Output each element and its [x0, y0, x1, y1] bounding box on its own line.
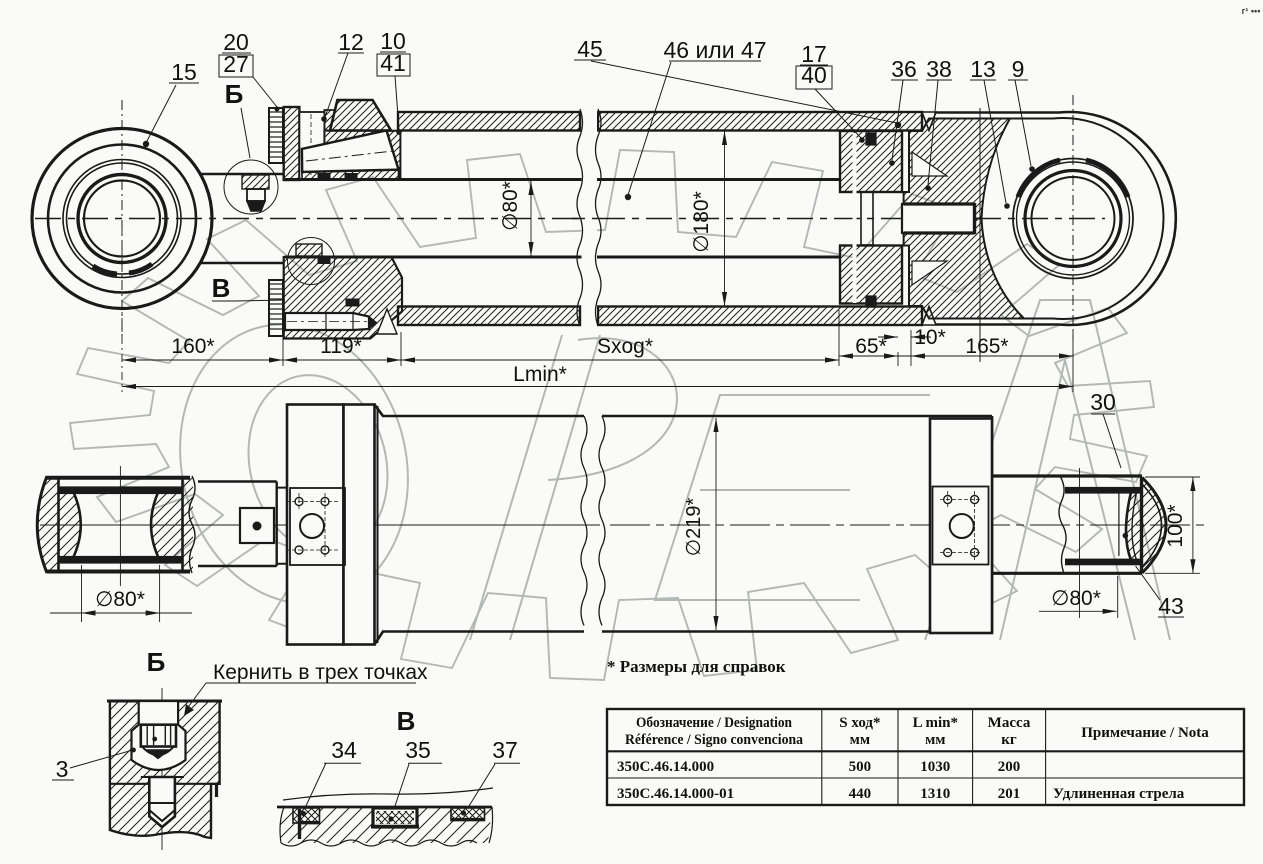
svg-text:100*: 100* — [1164, 504, 1187, 547]
svg-text:46 или 47: 46 или 47 — [663, 37, 766, 63]
svg-text:L min*: L min* — [913, 715, 958, 731]
svg-text:1030: 1030 — [920, 759, 950, 775]
svg-text:Б: Б — [225, 79, 244, 109]
svg-text:∅80*: ∅80* — [499, 181, 522, 231]
svg-text:Удлиненная стрела: Удлиненная стрела — [1053, 786, 1185, 802]
svg-text:Кернить в трех точках: Кернить в трех точках — [213, 661, 428, 684]
svg-text:мм: мм — [850, 732, 870, 748]
svg-text:∅80*: ∅80* — [95, 588, 145, 611]
svg-text:500: 500 — [849, 759, 872, 775]
svg-text:В: В — [397, 706, 416, 736]
svg-text:65*: 65* — [855, 335, 887, 358]
svg-text:37: 37 — [492, 737, 518, 763]
svg-text:В: В — [212, 273, 231, 303]
svg-text:35: 35 — [405, 737, 431, 763]
svg-text:Обозначение / Designation: Обозначение / Designation — [636, 715, 793, 731]
svg-text:Référence / Signo convenciona: Référence / Signo convenciona — [625, 732, 803, 748]
svg-text:Sxog*: Sxog* — [597, 335, 653, 358]
svg-text:* Размеры для справок: * Размеры для справок — [607, 657, 786, 676]
svg-text:440: 440 — [849, 786, 872, 802]
svg-text:Примечание / Nota: Примечание / Nota — [1081, 725, 1209, 741]
svg-text:10*: 10* — [914, 326, 946, 349]
svg-text:119*: 119* — [320, 335, 362, 358]
svg-text:12: 12 — [338, 29, 364, 55]
svg-text:350С.46.14.000: 350С.46.14.000 — [617, 759, 714, 775]
svg-text:34: 34 — [331, 737, 357, 763]
svg-text:15: 15 — [171, 59, 197, 85]
svg-text:3: 3 — [56, 756, 69, 782]
svg-text:∅80*: ∅80* — [1051, 587, 1101, 610]
svg-text:45: 45 — [577, 36, 603, 62]
svg-text:30: 30 — [1090, 389, 1116, 415]
svg-text:201: 201 — [998, 786, 1021, 802]
svg-text:13: 13 — [970, 56, 996, 82]
svg-text:Масса: Масса — [988, 715, 1031, 731]
svg-text:∅219*: ∅219* — [683, 497, 705, 556]
svg-text:350С.46.14.000-01: 350С.46.14.000-01 — [617, 786, 734, 802]
svg-text:1310: 1310 — [920, 786, 950, 802]
svg-text:200: 200 — [998, 759, 1021, 775]
svg-text:165*: 165* — [965, 335, 1008, 358]
svg-text:Б: Б — [147, 647, 166, 677]
svg-text:кг: кг — [1001, 732, 1017, 748]
svg-text:43: 43 — [1158, 593, 1184, 619]
svg-text:S ход*: S ход* — [839, 715, 880, 731]
svg-text:∅180*: ∅180* — [690, 191, 713, 253]
svg-text:38: 38 — [926, 56, 952, 82]
svg-text:мм: мм — [925, 732, 945, 748]
svg-text:9: 9 — [1012, 56, 1025, 82]
svg-text:Lmin*: Lmin* — [513, 363, 567, 386]
svg-text:36: 36 — [891, 56, 917, 82]
svg-text:160*: 160* — [171, 335, 214, 358]
svg-text:г¹ •••: г¹ ••• — [1242, 6, 1261, 16]
